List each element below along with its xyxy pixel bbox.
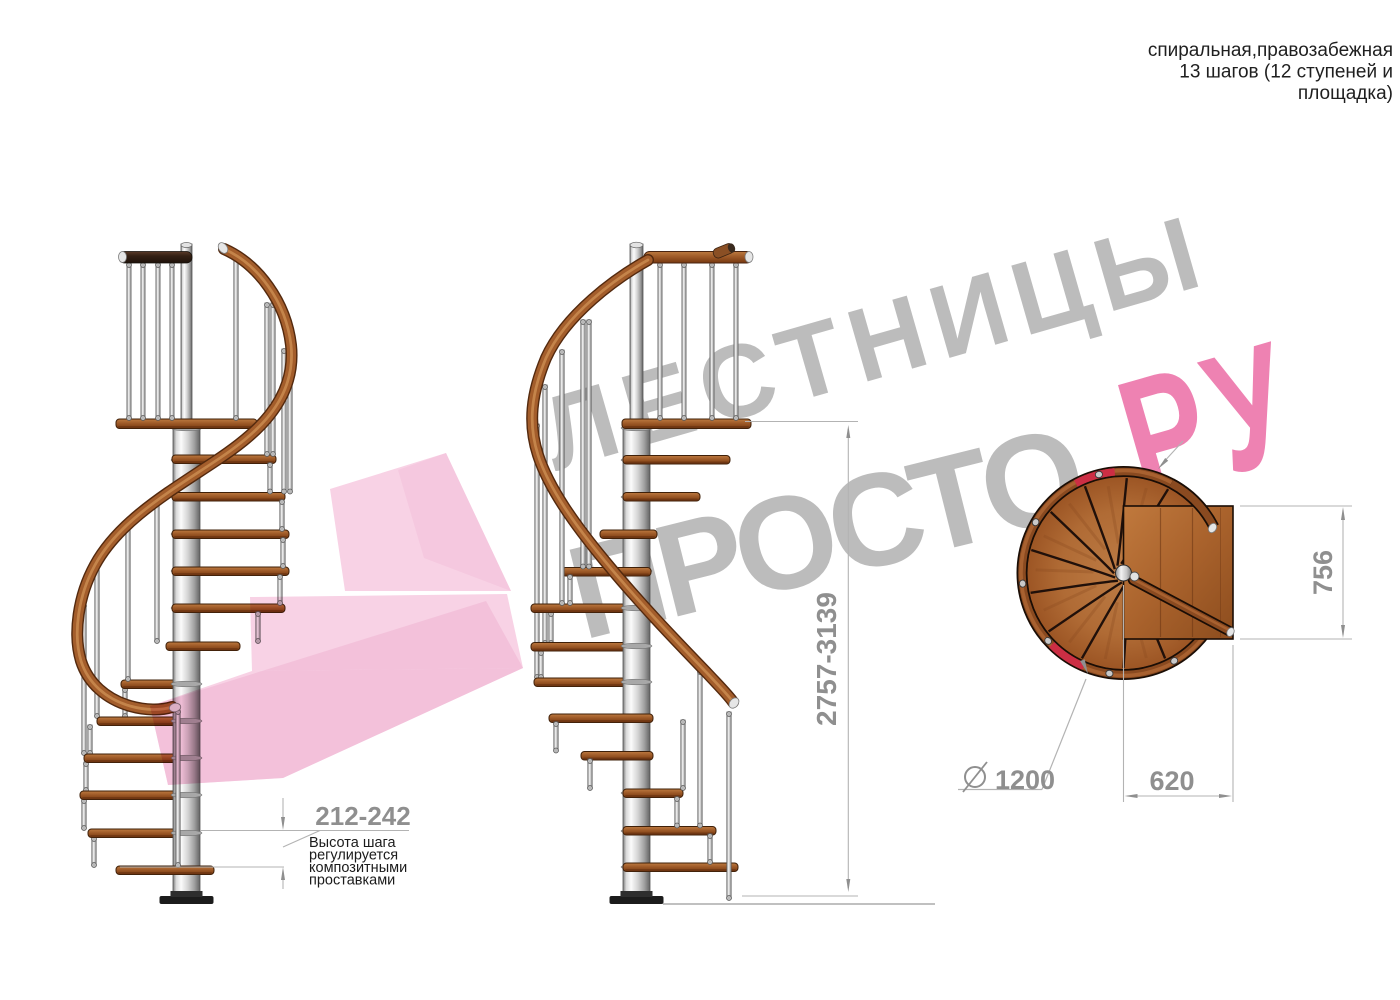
- svg-text:620: 620: [1149, 766, 1194, 796]
- svg-text:1200: 1200: [995, 765, 1055, 795]
- svg-text:Высота шагарегулируетсякомпози: Высота шагарегулируетсякомпозитнымипрост…: [309, 835, 407, 889]
- svg-text:212-242: 212-242: [315, 801, 410, 831]
- svg-text:2757-3139: 2757-3139: [811, 592, 842, 726]
- svg-text:756: 756: [1308, 550, 1338, 595]
